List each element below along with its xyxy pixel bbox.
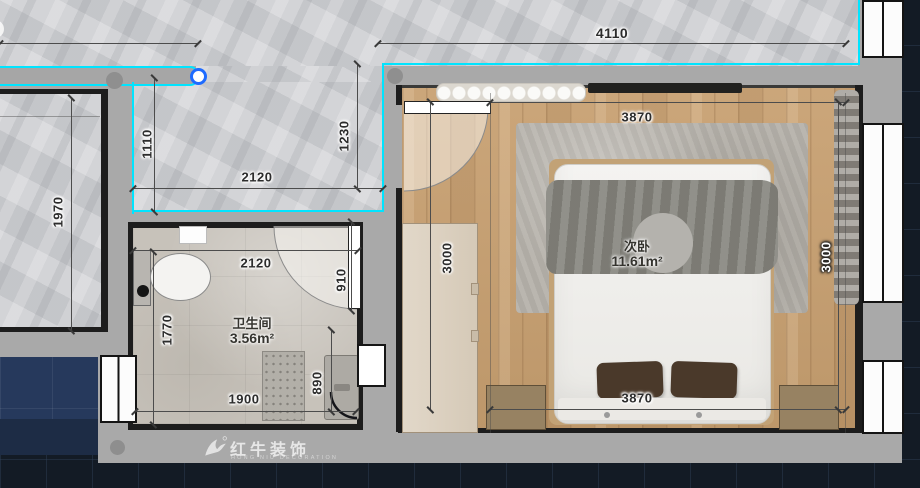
bedroom-label: 次卧 11.61m² [611, 240, 662, 268]
dimension-line [838, 102, 839, 409]
dimension-label: 3870 [622, 391, 653, 406]
selected-wall-outline[interactable] [382, 63, 860, 65]
dimension-label: 2120 [242, 170, 273, 185]
dimension-label: 1770 [160, 315, 175, 346]
dimension-line [71, 98, 72, 330]
watermark-tagline: HONG NIU DECORATION [231, 455, 338, 461]
floorplan-canvas: 4110 1970 1110 1230 2120 2120 910 1770 1… [0, 0, 920, 488]
selected-wall-outline[interactable] [858, 0, 860, 65]
column-marker [106, 72, 123, 89]
bathroom-area: 3.56m² [230, 331, 274, 345]
dimension-line [153, 252, 154, 424]
dimension-line [133, 188, 382, 189]
bathroom-name: 卫生间 [230, 317, 274, 331]
selected-wall-outline[interactable] [132, 82, 134, 214]
dimension-line [351, 222, 352, 310]
dimension-label: 1230 [337, 121, 352, 152]
dimension-line [378, 43, 845, 44]
witness-line [490, 93, 491, 433]
dimension-line [133, 250, 357, 251]
dimension-label: 3870 [622, 110, 653, 125]
selected-wall[interactable] [0, 66, 199, 86]
dimension-label: 910 [334, 268, 349, 291]
bedroom-door[interactable] [404, 101, 491, 114]
column-marker [387, 68, 403, 84]
dimension-line [490, 102, 845, 103]
bedroom-area: 11.61m² [611, 254, 662, 268]
column-marker [110, 440, 125, 455]
dimension-line [357, 64, 358, 188]
bathroom-door[interactable] [348, 225, 361, 309]
dimension-line [135, 411, 355, 412]
dimension-label: 3000 [819, 242, 834, 273]
dimension-label: 2120 [241, 256, 272, 271]
hongniu-logo-icon [202, 434, 228, 460]
selection-grip-handle[interactable] [190, 68, 207, 85]
witness-line [0, 116, 100, 117]
dimension-label: 3000 [440, 243, 455, 274]
dimension-label: 4110 [596, 25, 628, 41]
dimension-line [430, 102, 431, 409]
dimension-label: 890 [310, 371, 325, 394]
duct-shaft [357, 344, 386, 387]
window-right-top[interactable] [862, 0, 904, 58]
dimension-line [331, 330, 332, 411]
dimension-label: 1900 [229, 392, 260, 407]
dimension-line [490, 409, 845, 410]
window-right-bottom[interactable] [862, 360, 904, 434]
bathroom-label: 卫生间 3.56m² [230, 317, 274, 345]
bedroom-name: 次卧 [611, 240, 662, 254]
dimension-label: 1970 [51, 197, 66, 228]
dimension-label: 1110 [140, 129, 155, 159]
window-right-mid[interactable] [862, 123, 904, 303]
witness-line [845, 93, 846, 433]
dimension-line [0, 43, 197, 44]
selected-wall-outline[interactable] [132, 210, 384, 212]
